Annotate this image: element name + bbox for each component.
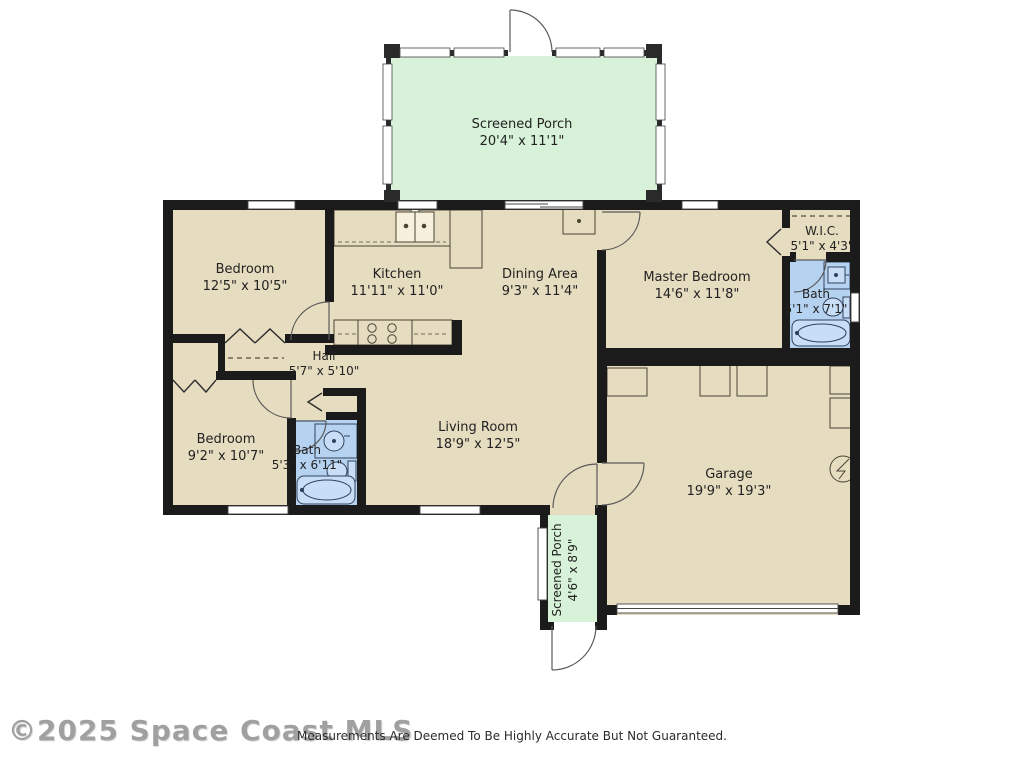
dims-bedroom-top: 12'5" x 10'5" bbox=[203, 279, 288, 294]
label-kitchen: Kitchen bbox=[373, 267, 422, 282]
label-bedroom-top: Bedroom bbox=[216, 262, 275, 277]
dims-master-bath: 5'1" x 7'1" bbox=[785, 302, 848, 316]
dims-garage: 19'9" x 19'3" bbox=[687, 484, 772, 499]
label-screened-porch-top: Screened Porch bbox=[472, 117, 573, 132]
window bbox=[851, 293, 859, 322]
dims-hall: 5'7" x 5'10" bbox=[289, 364, 360, 378]
dims-bath-second: 5'3" x 6'11" bbox=[272, 458, 343, 472]
dims-living-room: 18'9" x 12'5" bbox=[436, 437, 521, 452]
window bbox=[682, 201, 718, 209]
window bbox=[398, 201, 437, 209]
label-wic: W.I.C. bbox=[805, 224, 839, 238]
label-living-room: Living Room bbox=[438, 420, 518, 435]
bathtub-icon bbox=[792, 320, 850, 346]
garage-door bbox=[617, 604, 838, 613]
dims-master-bedroom: 14'6" x 11'8" bbox=[655, 287, 740, 302]
label-screened-porch-bottom: Screened Porch bbox=[550, 523, 564, 616]
stove-icon bbox=[358, 320, 412, 345]
bathtub-icon bbox=[297, 476, 355, 504]
window bbox=[248, 201, 295, 209]
dims-dining: 9'3" x 11'4" bbox=[502, 284, 578, 299]
floor-plan-page: Screened Porch 20'4" x 11'1" Bedroom 12'… bbox=[0, 0, 1024, 768]
dims-kitchen: 11'11" x 11'0" bbox=[351, 284, 444, 299]
label-bath-second: Bath bbox=[293, 443, 321, 457]
label-dining: Dining Area bbox=[502, 267, 578, 282]
door-porch-bottom-exterior bbox=[552, 626, 596, 670]
dims-screened-porch-bottom: 4'6" x 8'9" bbox=[566, 539, 580, 602]
window bbox=[228, 506, 288, 514]
sliding-glass-door bbox=[505, 201, 583, 209]
dims-bedroom-bottom: 9'2" x 10'7" bbox=[188, 449, 264, 464]
window bbox=[538, 528, 547, 600]
label-garage: Garage bbox=[705, 467, 753, 482]
label-master-bath: Bath bbox=[802, 287, 830, 301]
label-bedroom-bottom: Bedroom bbox=[197, 432, 256, 447]
dims-wic: 5'1" x 4'3" bbox=[791, 239, 854, 253]
window bbox=[420, 506, 480, 514]
kitchen-sink-icon bbox=[396, 207, 434, 242]
label-master-bedroom: Master Bedroom bbox=[643, 270, 750, 285]
dims-screened-porch-top: 20'4" x 11'1" bbox=[480, 134, 565, 149]
disclaimer-text: Measurements Are Deemed To Be Highly Acc… bbox=[0, 729, 1024, 743]
label-hall: Hall bbox=[312, 349, 335, 363]
floor-plan-drawing: Screened Porch 20'4" x 11'1" Bedroom 12'… bbox=[0, 0, 1024, 768]
door-porch-top-exterior bbox=[510, 10, 552, 52]
